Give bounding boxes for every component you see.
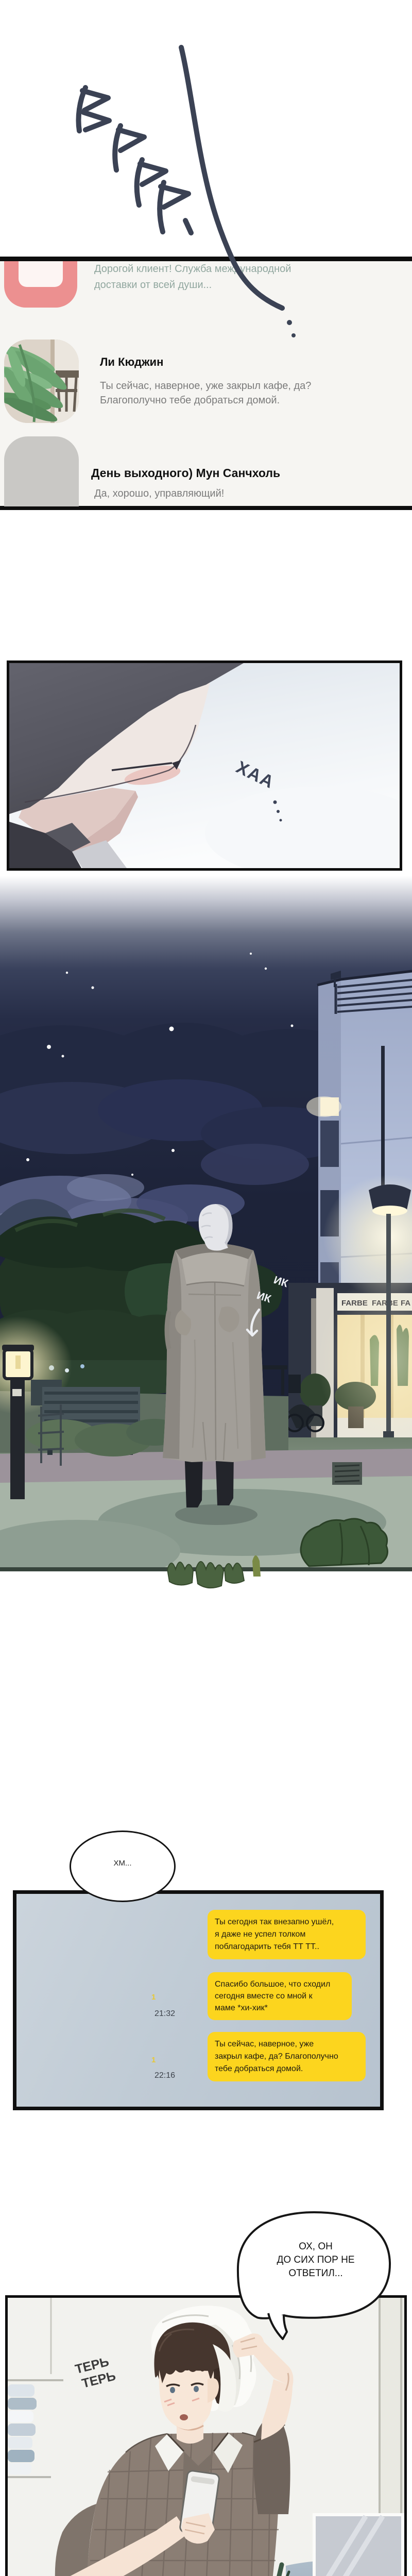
- svg-text:ОХ, ОН: ОХ, ОН: [299, 2241, 333, 2252]
- svg-text:ДО СИХ ПОР НЕ: ДО СИХ ПОР НЕ: [277, 2255, 354, 2265]
- svg-text:ОТВЕТИЛ...: ОТВЕТИЛ...: [288, 2268, 342, 2279]
